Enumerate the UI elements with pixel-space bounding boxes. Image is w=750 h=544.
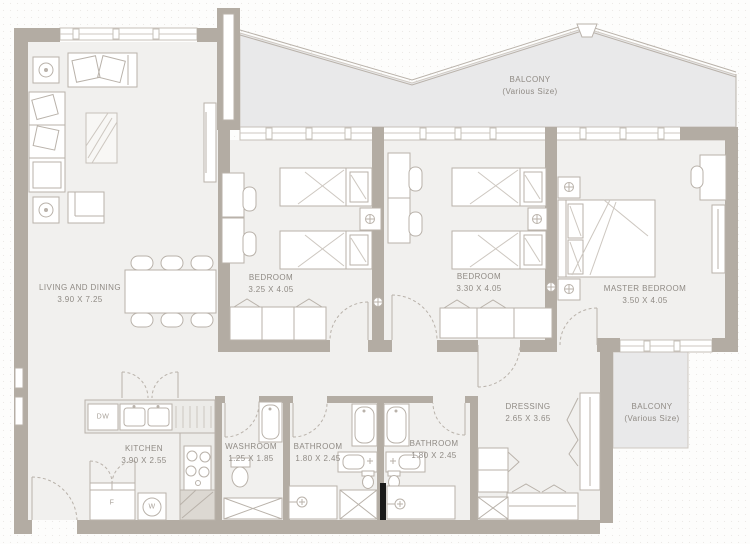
room-dims: 3.25 X 4.05 (248, 284, 293, 296)
room-name: BATHROOM (410, 438, 459, 450)
room-label-kitchen: KITCHEN 3.90 X 2.55 (121, 443, 166, 467)
room-label-balcony-top: BALCONY (Various Size) (502, 74, 557, 98)
room-name: BEDROOM (456, 271, 501, 283)
room-name: BEDROOM (248, 272, 293, 284)
room-label-bedroom-2: BEDROOM 3.30 X 4.05 (456, 271, 501, 295)
room-dims: 1.25 X 1.85 (225, 453, 277, 465)
balcony-right-area (613, 352, 688, 448)
room-name: BATHROOM (294, 441, 343, 453)
dishwasher-label: DW (97, 414, 110, 421)
floor-plan: LIVING AND DINING 3.90 X 7.25 BALCONY (V… (0, 0, 750, 544)
room-name: BALCONY (624, 401, 679, 413)
room-dims: 3.90 X 2.55 (121, 455, 166, 467)
room-dims: 3.50 X 4.05 (604, 295, 687, 307)
room-name: MASTER BEDROOM (604, 283, 687, 295)
room-label-master-bedroom: MASTER BEDROOM 3.50 X 4.05 (604, 283, 687, 307)
room-dims: 3.90 X 7.25 (39, 294, 121, 306)
washer-label: W (148, 504, 155, 511)
room-name: BALCONY (502, 74, 557, 86)
room-label-washroom: WASHROOM 1.25 X 1.85 (225, 441, 277, 465)
room-name: KITCHEN (121, 443, 166, 455)
room-dims: (Various Size) (624, 413, 679, 425)
balcony-top-area (240, 24, 736, 127)
room-dims: 2.65 X 3.65 (505, 413, 550, 425)
room-name: WASHROOM (225, 441, 277, 453)
floor-plan-drawing (0, 0, 750, 544)
room-dims: 1.80 X 2.45 (410, 450, 459, 462)
room-name: LIVING AND DINING (39, 282, 121, 294)
fridge-label: F (110, 500, 115, 507)
room-label-dressing: DRESSING 2.65 X 3.65 (505, 401, 550, 425)
room-label-bathroom-1: BATHROOM 1.80 X 2.45 (294, 441, 343, 465)
room-dims: (Various Size) (502, 86, 557, 98)
room-label-bedroom-1: BEDROOM 3.25 X 4.05 (248, 272, 293, 296)
room-name: DRESSING (505, 401, 550, 413)
room-label-balcony-right: BALCONY (Various Size) (624, 401, 679, 425)
room-label-bathroom-2: BATHROOM 1.80 X 2.45 (410, 438, 459, 462)
room-dims: 3.30 X 4.05 (456, 283, 501, 295)
room-dims: 1.80 X 2.45 (294, 453, 343, 465)
room-label-living-dining: LIVING AND DINING 3.90 X 7.25 (39, 282, 121, 306)
